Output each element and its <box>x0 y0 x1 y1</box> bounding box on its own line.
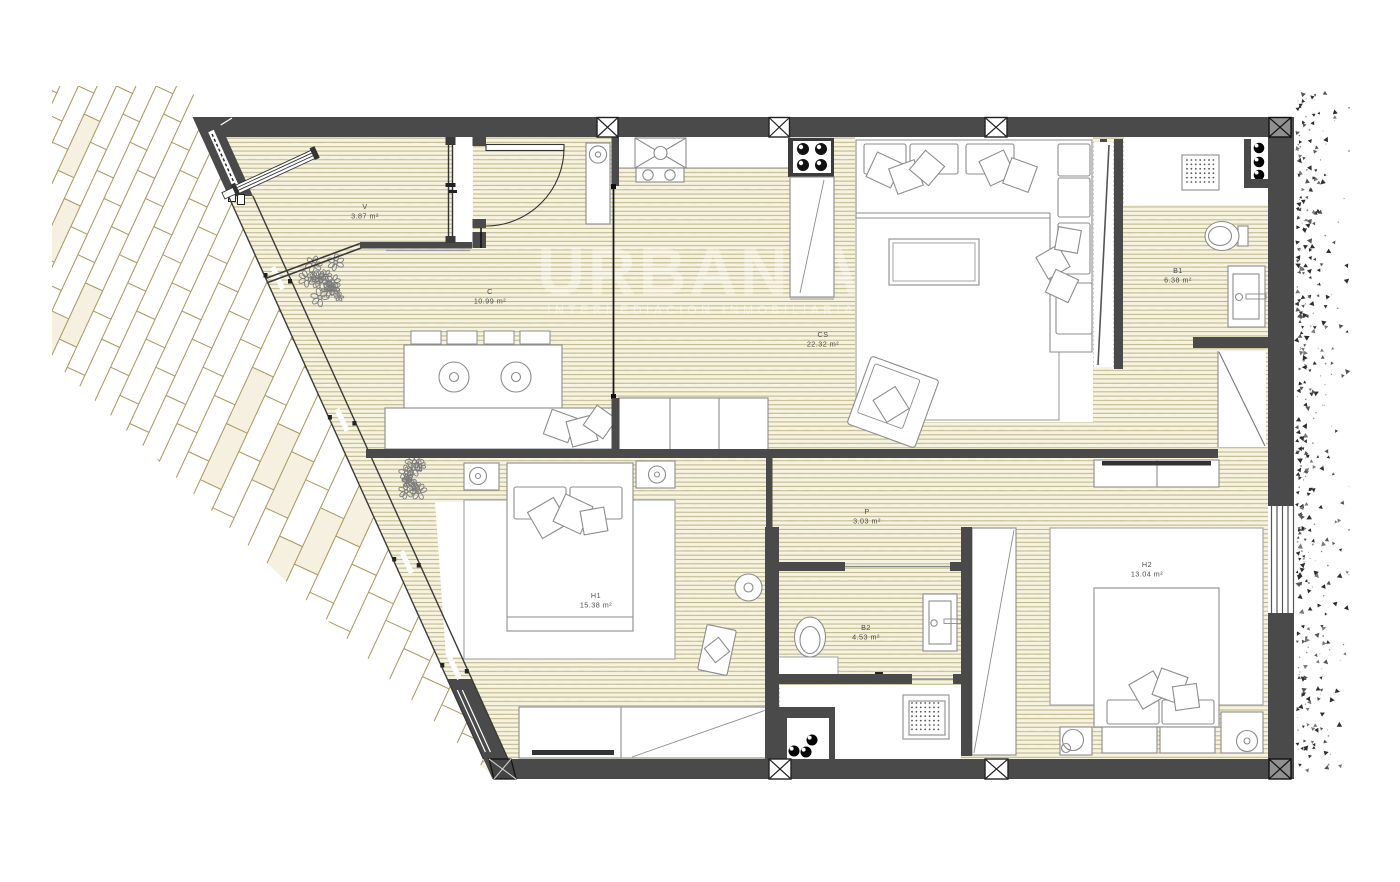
svg-text:13.04 m²: 13.04 m² <box>1131 570 1163 579</box>
svg-text:B1: B1 <box>1173 266 1183 275</box>
svg-text:INTERMEDIACION INMOBILIARIA: INTERMEDIACION INMOBILIARIA <box>547 303 857 317</box>
svg-text:3.03 m²: 3.03 m² <box>853 517 881 526</box>
svg-text:H1: H1 <box>591 591 601 600</box>
svg-text:CS: CS <box>818 330 829 339</box>
svg-text:V: V <box>362 202 367 211</box>
svg-text:C: C <box>487 287 493 296</box>
svg-text:B2: B2 <box>861 623 871 632</box>
svg-text:15.38 m²: 15.38 m² <box>580 601 612 610</box>
svg-text:H2: H2 <box>1142 560 1152 569</box>
svg-text:P: P <box>864 507 869 516</box>
svg-text:4.53 m²: 4.53 m² <box>852 633 880 642</box>
svg-text:6.38 m²: 6.38 m² <box>1164 276 1192 285</box>
svg-text:10.99 m²: 10.99 m² <box>474 297 506 306</box>
svg-text:3.87 m²: 3.87 m² <box>351 212 379 221</box>
svg-text:22.32 m²: 22.32 m² <box>807 340 839 349</box>
